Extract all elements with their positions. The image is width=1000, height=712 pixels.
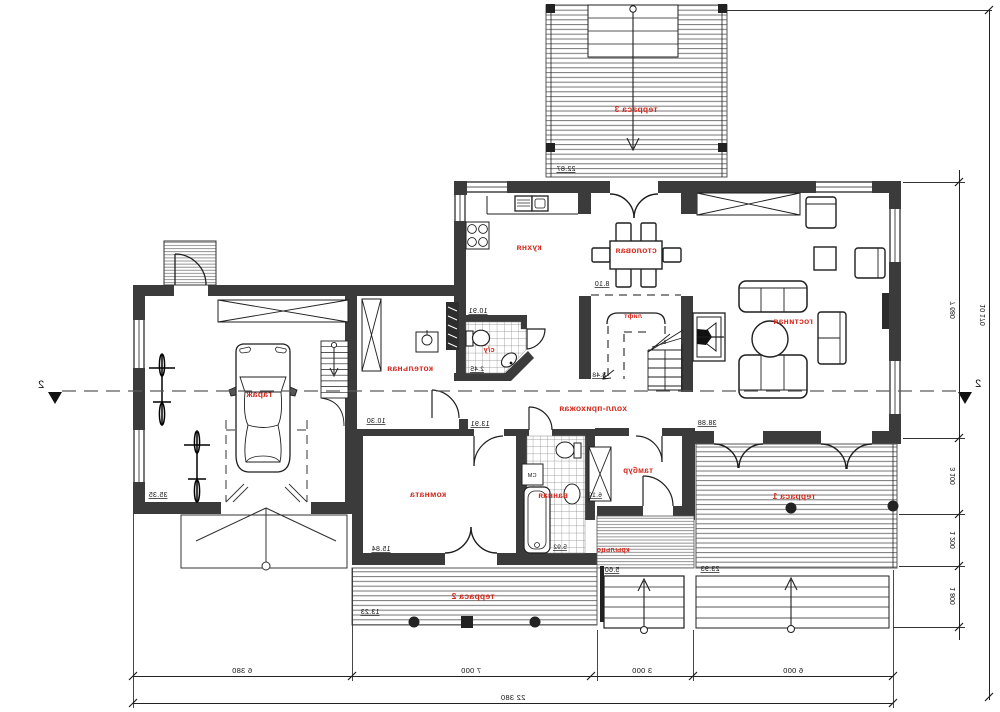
svg-text:35.35: 35.35 — [148, 492, 167, 499]
svg-text:терраса 3: терраса 3 — [614, 104, 657, 114]
svg-text:5.92: 5.92 — [553, 544, 567, 551]
svg-text:комната: комната — [410, 489, 446, 499]
svg-text:5.60: 5.60 — [605, 567, 620, 574]
svg-text:7 000: 7 000 — [461, 666, 481, 675]
svg-text:15.84: 15.84 — [371, 546, 390, 553]
svg-text:13.23: 13.23 — [360, 609, 379, 616]
svg-text:гостиная: гостиная — [773, 316, 813, 326]
svg-text:1 200: 1 200 — [950, 531, 957, 549]
svg-text:2.45: 2.45 — [470, 366, 484, 373]
svg-text:с/у: с/у — [483, 345, 495, 354]
svg-text:тамбур: тамбур — [623, 466, 653, 475]
svg-text:23.93: 23.93 — [700, 566, 719, 573]
svg-text:2: 2 — [38, 379, 44, 391]
svg-text:38.88: 38.88 — [697, 420, 716, 427]
svg-text:3 100: 3 100 — [950, 467, 957, 485]
svg-text:6.19: 6.19 — [588, 492, 602, 499]
svg-text:8.10: 8.10 — [595, 281, 610, 288]
svg-text:кухня: кухня — [516, 242, 541, 252]
svg-text:22.87: 22.87 — [556, 166, 575, 173]
svg-text:3 000: 3 000 — [632, 666, 652, 675]
svg-text:10.30: 10.30 — [366, 418, 385, 425]
svg-text:10 170: 10 170 — [980, 304, 987, 326]
svg-text:ванная: ванная — [538, 491, 568, 500]
svg-text:6 380: 6 380 — [232, 666, 252, 675]
svg-text:10.91: 10.91 — [468, 308, 487, 315]
svg-text:СМ: СМ — [527, 473, 536, 479]
svg-text:лифт: лифт — [624, 313, 642, 320]
svg-text:терраса 2: терраса 2 — [451, 591, 494, 601]
svg-text:8.48: 8.48 — [592, 372, 606, 379]
svg-text:2: 2 — [975, 378, 981, 390]
svg-text:столовая: столовая — [615, 245, 656, 255]
svg-text:крыльцо: крыльцо — [596, 547, 629, 554]
svg-text:котельная: котельная — [387, 363, 433, 373]
svg-text:6 000: 6 000 — [783, 666, 803, 675]
svg-text:терраса 1: терраса 1 — [772, 491, 815, 501]
svg-text:1 800: 1 800 — [950, 587, 957, 605]
svg-text:22 380: 22 380 — [501, 693, 526, 702]
svg-text:7 680: 7 680 — [950, 301, 957, 319]
svg-text:13.91: 13.91 — [470, 421, 489, 428]
svg-text:холл-прихожая: холл-прихожая — [559, 403, 627, 413]
